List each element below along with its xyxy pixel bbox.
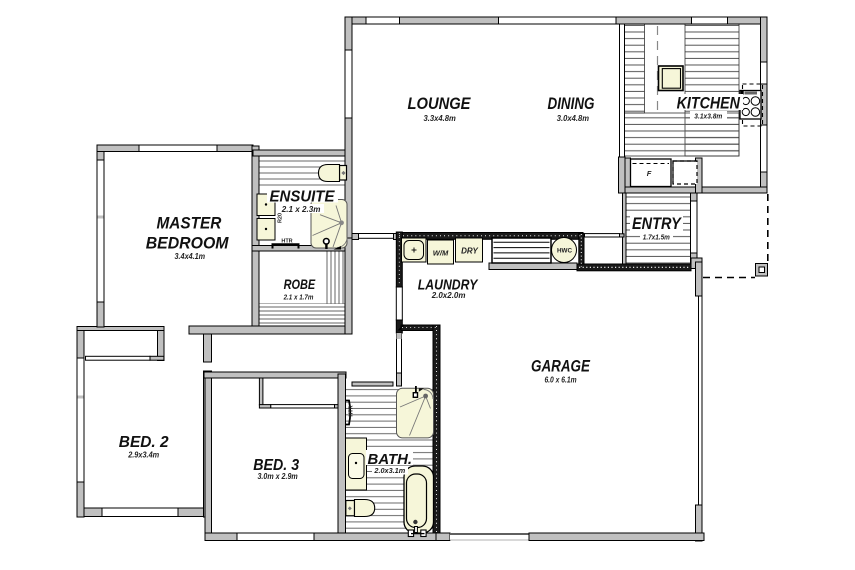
svg-text:3.0m x 2.9m: 3.0m x 2.9m bbox=[257, 472, 297, 481]
svg-text:6.0 x 6.1m: 6.0 x 6.1m bbox=[544, 375, 576, 384]
svg-text:R20: R20 bbox=[278, 213, 284, 223]
svg-text:ROBE: ROBE bbox=[284, 276, 316, 292]
svg-text:HTR: HTR bbox=[349, 405, 355, 416]
svg-text:MASTER: MASTER bbox=[157, 215, 222, 233]
svg-text:W/M: W/M bbox=[433, 249, 449, 258]
svg-text:DINING: DINING bbox=[548, 95, 595, 113]
svg-text:1.7x1.5m: 1.7x1.5m bbox=[643, 233, 670, 242]
svg-text:2.9x3.4m: 2.9x3.4m bbox=[127, 451, 159, 460]
svg-text:BEDROOM: BEDROOM bbox=[146, 234, 230, 252]
svg-text:KITCHEN: KITCHEN bbox=[677, 93, 741, 112]
svg-text:ENSUITE: ENSUITE bbox=[270, 188, 336, 205]
svg-text:HTR: HTR bbox=[281, 239, 292, 245]
svg-text:3.3x4.8m: 3.3x4.8m bbox=[424, 114, 456, 123]
svg-text:F: F bbox=[647, 169, 652, 178]
svg-text:HWC: HWC bbox=[557, 248, 572, 255]
svg-text:3.1x3.8m: 3.1x3.8m bbox=[694, 111, 722, 120]
svg-text:DRY: DRY bbox=[461, 247, 478, 256]
svg-text:2.0x2.0m: 2.0x2.0m bbox=[431, 291, 466, 300]
svg-text:GARAGE: GARAGE bbox=[531, 357, 590, 376]
svg-text:2.1 x 1.7m: 2.1 x 1.7m bbox=[283, 293, 314, 302]
svg-text:LOUNGE: LOUNGE bbox=[408, 95, 472, 113]
svg-text:3.4x4.1m: 3.4x4.1m bbox=[175, 252, 206, 261]
svg-text:2.1 x 2.3m: 2.1 x 2.3m bbox=[281, 205, 321, 214]
svg-text:3.0x4.8m: 3.0x4.8m bbox=[557, 114, 589, 123]
svg-text:2.0x3.1m: 2.0x3.1m bbox=[373, 466, 405, 475]
svg-text:ENTRY: ENTRY bbox=[632, 215, 683, 233]
svg-text:BED. 2: BED. 2 bbox=[119, 434, 169, 451]
